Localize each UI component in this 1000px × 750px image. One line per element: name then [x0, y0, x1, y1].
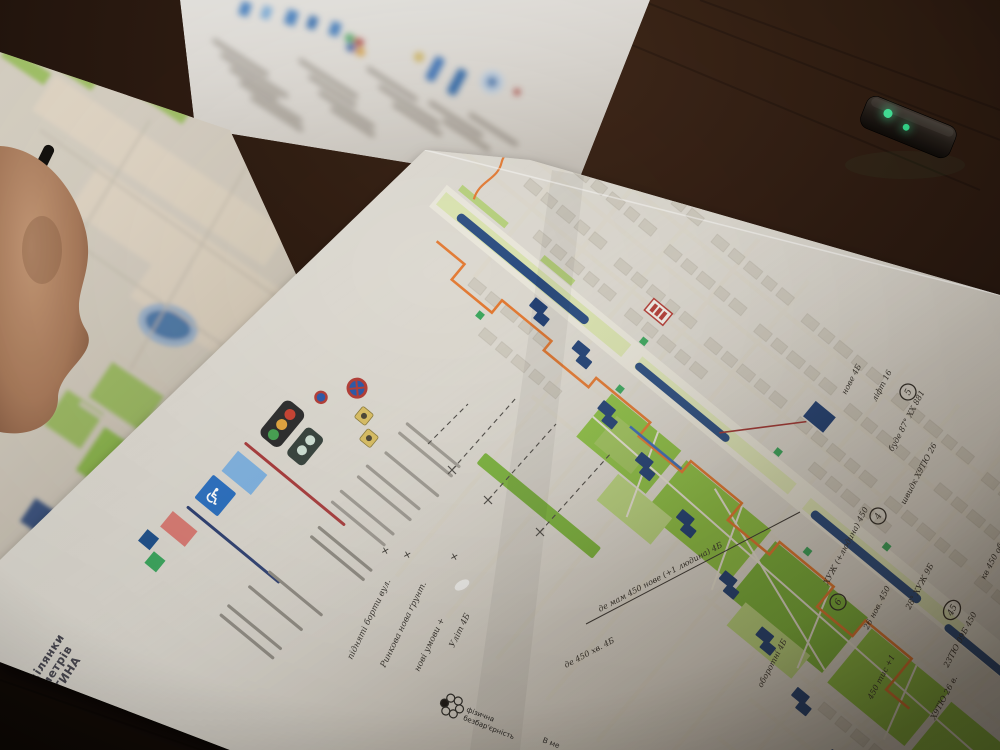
vignette [0, 0, 1000, 750]
photo-of-maps-on-table: ♿ ація ділянки 3000 метрів А ЧАСТИНА фіз… [0, 0, 1000, 750]
scene-canvas: ♿ ація ділянки 3000 метрів А ЧАСТИНА фіз… [0, 0, 1000, 750]
